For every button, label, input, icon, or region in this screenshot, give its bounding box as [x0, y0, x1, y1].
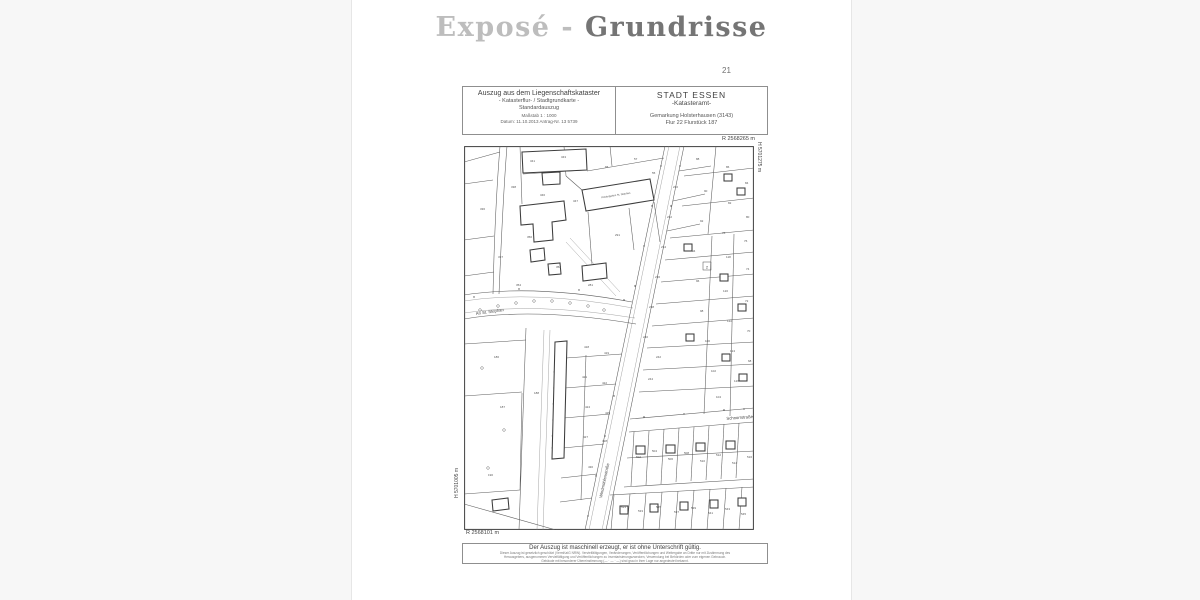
cadastral-map: 2 An St. Stephan Schnorrstraße Windmühle…	[464, 146, 754, 530]
parcel-number: 244	[648, 377, 653, 381]
header-left-box: Auszug aus dem Liegenschaftskataster - K…	[462, 86, 615, 135]
parcel-number: 57	[634, 157, 638, 161]
document-page: Exposé - Grundrisse 21 Auszug aus dem Li…	[351, 0, 852, 600]
parcel-number: 232	[667, 215, 672, 219]
coordinate-right-vertical: H 5701275 m	[756, 142, 762, 172]
map-parcels-southeast	[610, 423, 754, 530]
parcel-number: 430	[588, 465, 593, 469]
parcel-number: 240	[643, 335, 648, 339]
parcel-number: 352	[556, 265, 561, 269]
header-left-date: Datum: 11.10.2013 Antrag-Nr. 13 5739	[463, 119, 615, 125]
parcel-number: 94	[692, 249, 696, 253]
parcel-number: 236	[655, 275, 660, 279]
parcel-number: 122	[727, 319, 732, 323]
parcel-number: 78	[722, 231, 726, 235]
document-header: Auszug aus dem Liegenschaftskataster - K…	[462, 86, 768, 135]
parcel-number: 419	[604, 351, 609, 355]
parcel-number: 291	[615, 233, 620, 237]
parcel-number: 341	[530, 159, 535, 163]
parcel-number: 118	[726, 255, 731, 259]
parcel-number: 424	[585, 405, 590, 409]
parcel-number: 422	[602, 381, 607, 385]
parcel-number: 88	[696, 157, 700, 161]
header-office: -Katasteramt-	[616, 100, 767, 108]
parcel-number: 347	[573, 199, 578, 203]
parcel-number: 508	[684, 451, 689, 455]
parcel-number: 104	[716, 395, 721, 399]
parcel-number: 96	[696, 279, 700, 283]
parcel-number: 510	[700, 459, 705, 463]
disclaimer-fineprint-3: Gebäude mit besonderer Übereinstimmung (…	[463, 560, 767, 564]
parcel-number: 343	[561, 155, 566, 159]
parcel-number: 537	[674, 510, 679, 514]
parcel-number: 234	[661, 245, 666, 249]
boxed-symbol-label: 2	[706, 265, 709, 270]
street-label-schnorrstrasse: Schnorrstraße	[726, 414, 753, 421]
parcel-number: 418	[584, 345, 589, 349]
map-buildings	[492, 149, 747, 514]
parcel-number: 242	[656, 355, 661, 359]
disclaimer-box: Der Auszug ist maschinell erzeugt, er is…	[462, 543, 768, 564]
parcel-number: 90	[704, 189, 708, 193]
header-flur: Flur 22 Flurstück 187	[616, 120, 767, 127]
parcel-number: 120	[723, 289, 728, 293]
parcel-number: 230	[673, 185, 678, 189]
parcel-number: 338	[511, 185, 516, 189]
parcel-number: 102	[711, 369, 716, 373]
header-left-type: Standardauszug	[463, 105, 615, 112]
map-symbol-2: 2	[703, 262, 711, 270]
page-number: 21	[722, 66, 731, 75]
title-grundrisse: Grundrisse	[585, 12, 767, 43]
coordinate-top-right: R 2568265 m	[722, 136, 755, 142]
parcel-number: 421	[582, 375, 587, 379]
parcel-number: 506	[668, 457, 673, 461]
parcel-number: 531	[621, 505, 626, 509]
parcel-number: 336	[480, 207, 485, 211]
parcel-number: 541	[708, 511, 713, 515]
header-city: STADT ESSEN	[616, 90, 767, 100]
parcel-number: 533	[638, 509, 643, 513]
parcel-number: 98	[700, 309, 704, 313]
parcel-number: 186	[494, 355, 499, 359]
parcel-number: 65	[605, 165, 609, 169]
parcel-number: 188	[534, 391, 539, 395]
parcel-number: 74	[746, 267, 750, 271]
parcel-number: 72	[745, 299, 749, 303]
parcel-number: 100	[705, 339, 710, 343]
parcel-number: 543	[725, 507, 730, 511]
coordinate-bottom-left: R 2568101 m	[466, 530, 499, 536]
header-left-title: Auszug aus dem Liegenschaftskataster	[463, 90, 615, 98]
parcel-number: 425	[605, 411, 610, 415]
parcel-number: 86	[726, 165, 730, 169]
parcel-number: 76	[744, 239, 748, 243]
parcel-number: 427	[583, 435, 588, 439]
parcel-number: 428	[602, 439, 607, 443]
header-gemarkung: Gemarkung Holsterhausen (3143)	[616, 113, 767, 120]
parcel-number: 539	[691, 506, 696, 510]
parcel-number: 504	[652, 449, 657, 453]
parcel-number: 346	[540, 193, 545, 197]
coordinate-left-vertical: H 5701005 m	[454, 468, 460, 498]
parcel-number: 190	[488, 473, 493, 477]
parcel-number: 502	[636, 455, 641, 459]
parcel-number: 68	[748, 359, 752, 363]
street-label-windmuehlenstrasse: Windmühlenstraße	[598, 462, 610, 498]
parcel-number: 514	[732, 461, 737, 465]
parcel-number: 80	[746, 215, 750, 219]
parcel-number: 354	[516, 283, 521, 287]
parcel-number: 92	[700, 219, 704, 223]
parcel-number: 545	[741, 512, 746, 516]
parcel-number: 281	[588, 283, 593, 287]
parcel-number: 124	[730, 349, 735, 353]
parcel-number: 187	[500, 405, 505, 409]
parcel-number: 70	[747, 329, 751, 333]
screenshot-root: { "page": { "title_light": "Exposé - ", …	[0, 0, 1200, 600]
parcel-number: 516	[747, 455, 752, 459]
parcel-number: 55	[652, 171, 656, 175]
title-expose: Exposé -	[436, 12, 585, 43]
kataster-document: Auszug aus dem Liegenschaftskataster - K…	[462, 86, 768, 564]
header-right-box: STADT ESSEN -Katasteramt- Gemarkung Hols…	[615, 86, 768, 135]
parcel-number: 535	[656, 505, 661, 509]
parcel-number: 126	[734, 379, 739, 383]
parcel-number: 512	[716, 453, 721, 457]
parcel-number: 84	[745, 181, 749, 185]
parcel-number: 350	[527, 235, 532, 239]
parcel-number: 82	[728, 201, 732, 205]
parcel-number: 238	[649, 305, 654, 309]
page-title: Exposé - Grundrisse	[352, 12, 851, 43]
parcel-number: 337	[498, 255, 503, 259]
